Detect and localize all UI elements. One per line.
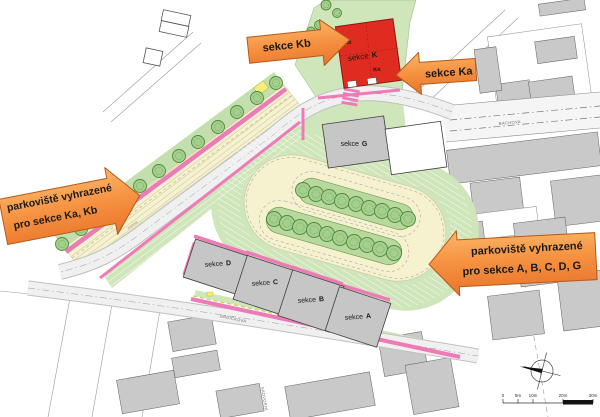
label-sekce-g: sekceG (341, 141, 368, 148)
scale-label-30m: 30m (589, 393, 598, 398)
scale-label-20m: 20m (559, 393, 568, 398)
site-plan-canvas: 0 5m 10m 20m 30m BACHOVA BRDIČKOVA NÁDVO… (0, 0, 600, 417)
building-sekce-k (335, 19, 401, 88)
building-white-context (385, 121, 447, 174)
site-plan: 0 5m 10m 20m 30m BACHOVA BRDIČKOVA NÁDVO… (0, 0, 600, 417)
scale-label-10m: 10m (529, 393, 538, 398)
scale-label-5m: 5m (515, 393, 522, 398)
